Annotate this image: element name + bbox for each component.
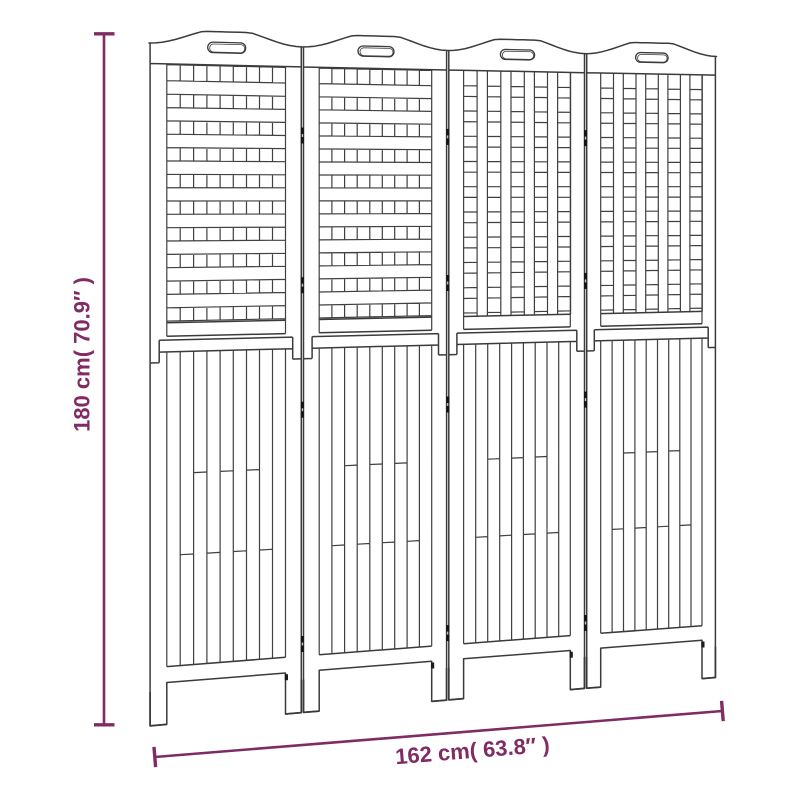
svg-text:180 cm( 70.9″ ): 180 cm( 70.9″ ) — [70, 277, 95, 432]
